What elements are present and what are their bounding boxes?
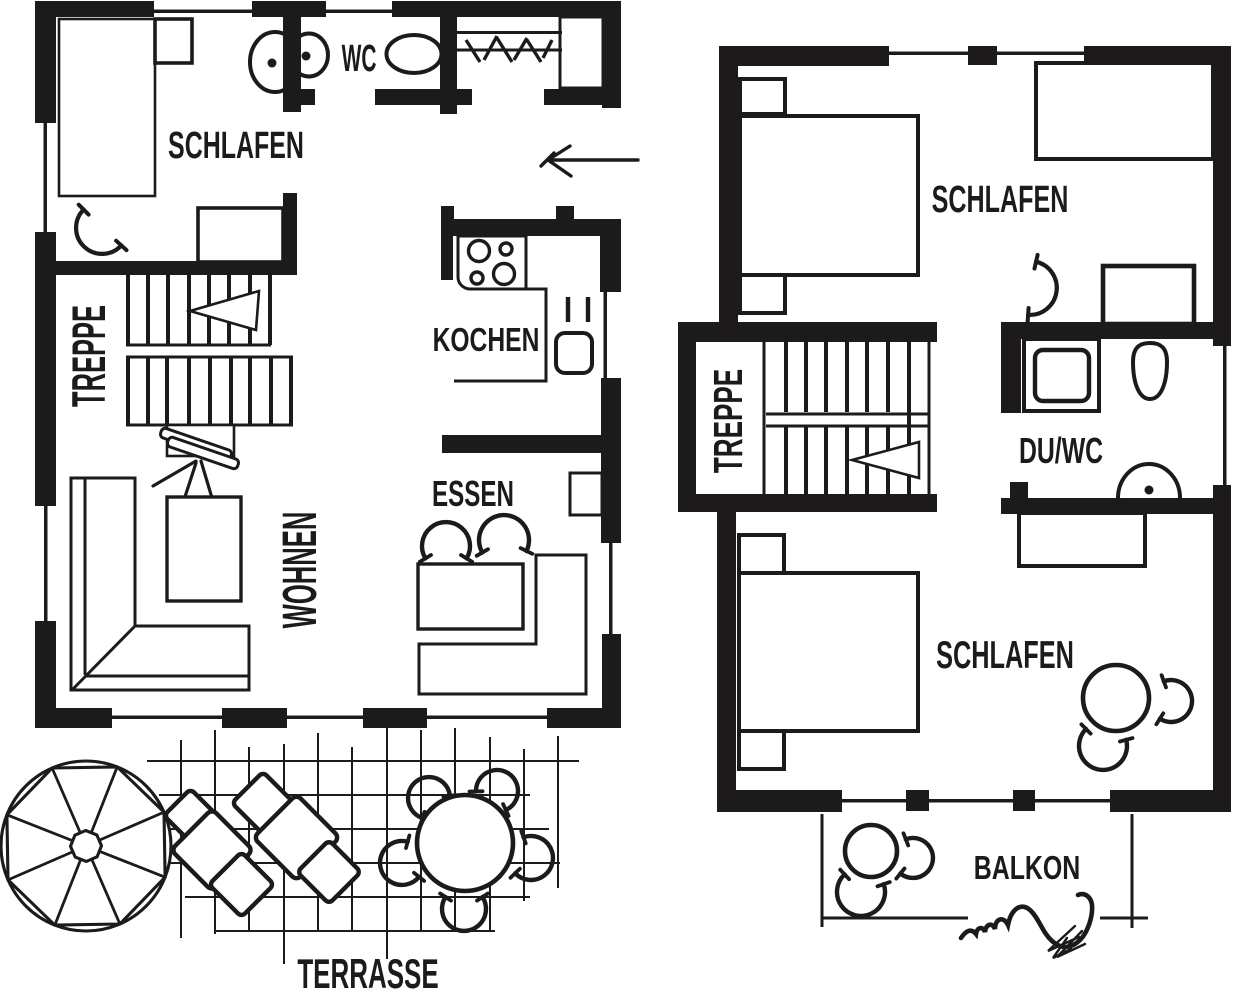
svg-text:KOCHEN: KOCHEN [433,323,540,359]
svg-text:SCHLAFEN: SCHLAFEN [932,178,1069,220]
svg-text:WC: WC [342,38,377,80]
svg-text:BALKON: BALKON [974,851,1081,887]
svg-text:ESSEN: ESSEN [432,474,514,514]
svg-text:TREPPE: TREPPE [706,369,751,473]
svg-text:SCHLAFEN: SCHLAFEN [168,124,304,167]
svg-text:WOHNEN: WOHNEN [274,512,328,629]
svg-text:DU/WC: DU/WC [1019,430,1103,471]
svg-text:TREPPE: TREPPE [64,305,116,407]
svg-text:SCHLAFEN: SCHLAFEN [936,632,1074,676]
svg-text:TERRASSE: TERRASSE [297,951,438,998]
